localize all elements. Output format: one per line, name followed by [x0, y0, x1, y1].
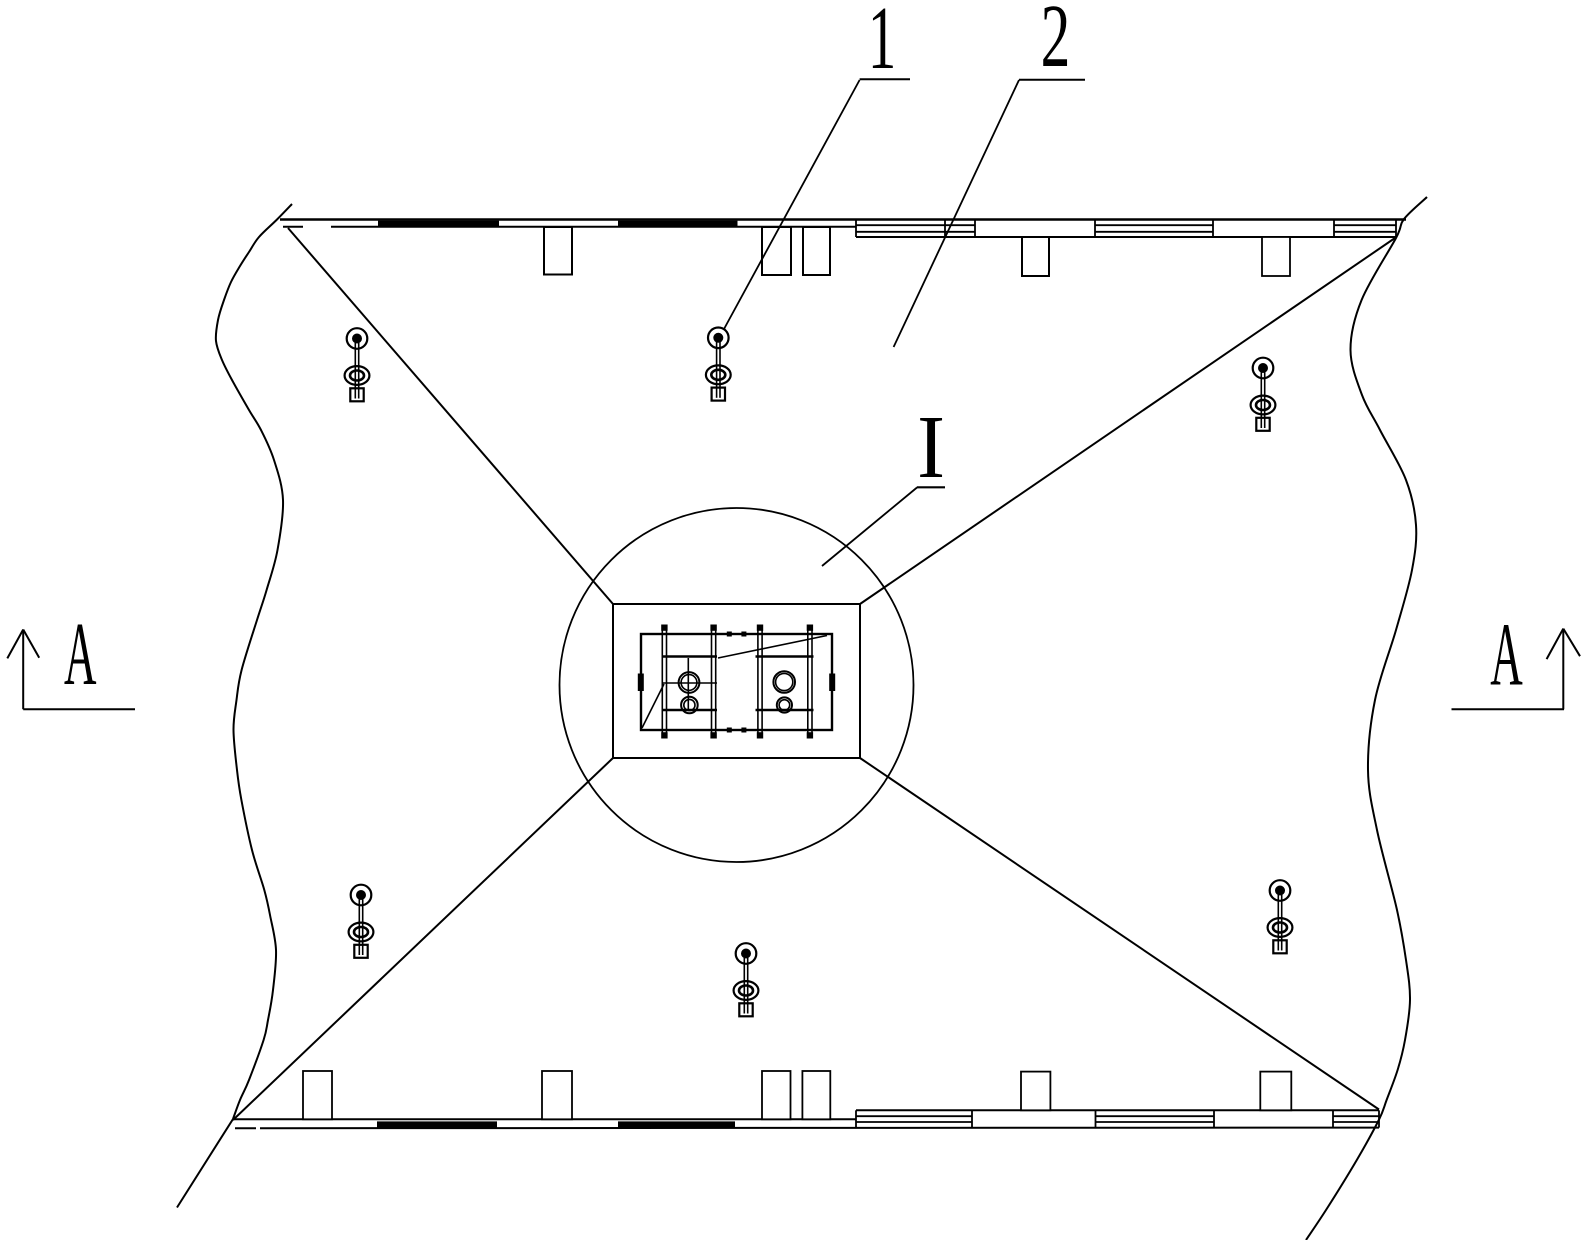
svg-text:1: 1 [868, 0, 896, 88]
svg-text:2: 2 [1041, 0, 1071, 86]
svg-text:I: I [917, 397, 945, 496]
svg-text:A: A [1490, 606, 1523, 705]
svg-text:A: A [64, 606, 97, 705]
